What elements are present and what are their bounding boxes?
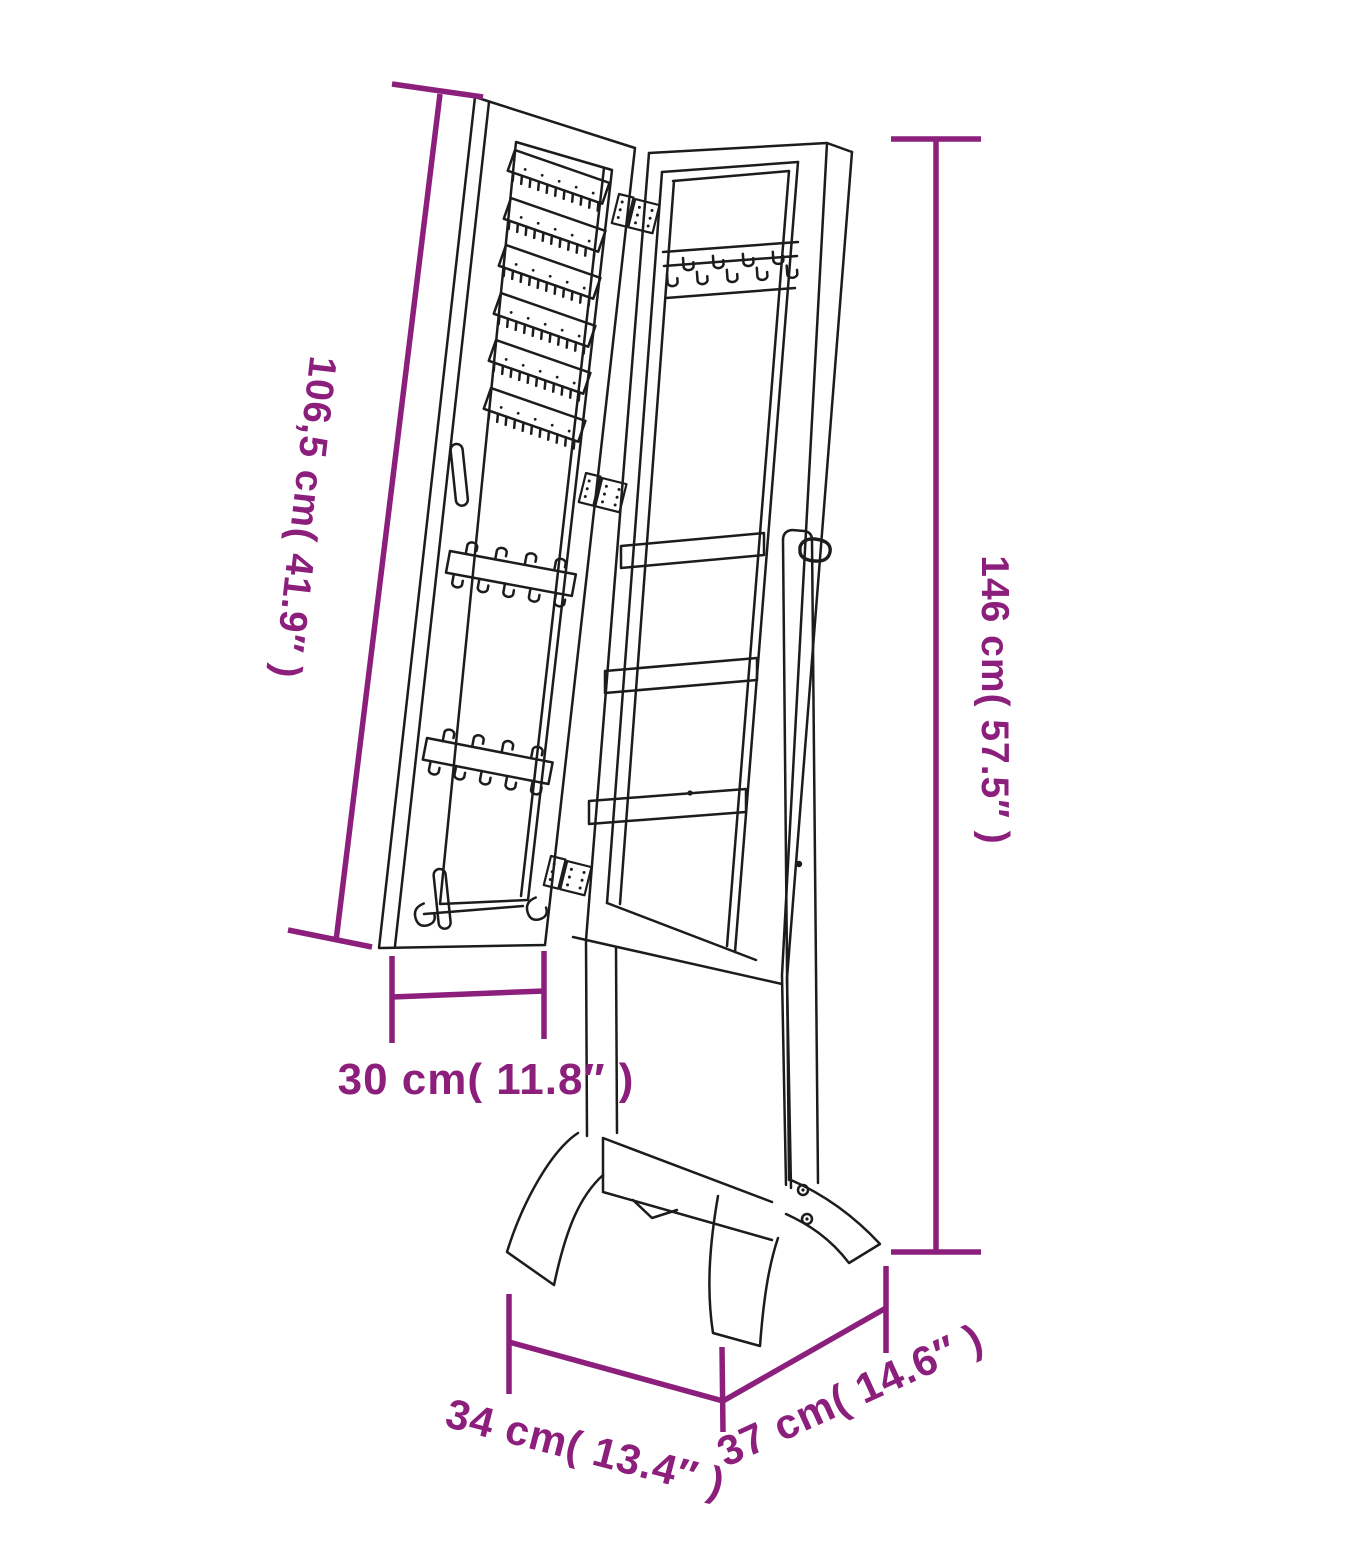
cabinet-bottom-edge — [573, 937, 782, 984]
opening-top-lip — [673, 171, 789, 181]
base-screws — [798, 1185, 812, 1224]
opening-top — [662, 162, 798, 172]
dimension-overall-height — [891, 139, 981, 1253]
stand-base — [507, 1133, 880, 1346]
door-width-line — [392, 991, 544, 997]
cabinet-right-stile-rear — [787, 152, 852, 1188]
opening-sill — [607, 903, 756, 960]
label-base-width: 37 cm( 14.6″ ) — [710, 1314, 990, 1475]
label-overall-height: 146 cm( 57.5″ ) — [973, 555, 1016, 845]
door-height-tick-bottom — [288, 930, 372, 947]
cabinet-hook-row-bottom — [667, 265, 798, 287]
cabinet-top-edge — [649, 143, 852, 153]
base-depth-line — [509, 1342, 723, 1401]
left-post-inner — [616, 948, 617, 1133]
cabinet-drawing — [379, 97, 880, 1346]
base-crossbar — [603, 1138, 772, 1240]
product-dimension-diagram: 106,5 cm( 41.9″ ) 146 cm( 57.5″ ) 30 cm(… — [0, 0, 1360, 1555]
label-door-height: 106,5 cm( 41.9″ ) — [265, 354, 344, 681]
dimension-door-width — [392, 951, 544, 1043]
dimension-lines — [288, 84, 981, 1432]
base-depth-tick-middle — [722, 1347, 723, 1432]
top-shelf-edge — [663, 242, 798, 252]
front-leg — [709, 1196, 778, 1346]
dimension-labels: 106,5 cm( 41.9″ ) 146 cm( 57.5″ ) 30 cm(… — [265, 354, 1016, 1507]
hook-rail-bottom — [666, 288, 795, 298]
label-door-width: 30 cm( 11.8″ ) — [338, 1055, 635, 1104]
dimension-diagram-page: 106,5 cm( 41.9″ ) 146 cm( 57.5″ ) 30 cm(… — [0, 0, 1360, 1555]
label-base-depth: 34 cm( 13.4″ ) — [441, 1389, 730, 1506]
left-leg — [507, 1133, 603, 1285]
